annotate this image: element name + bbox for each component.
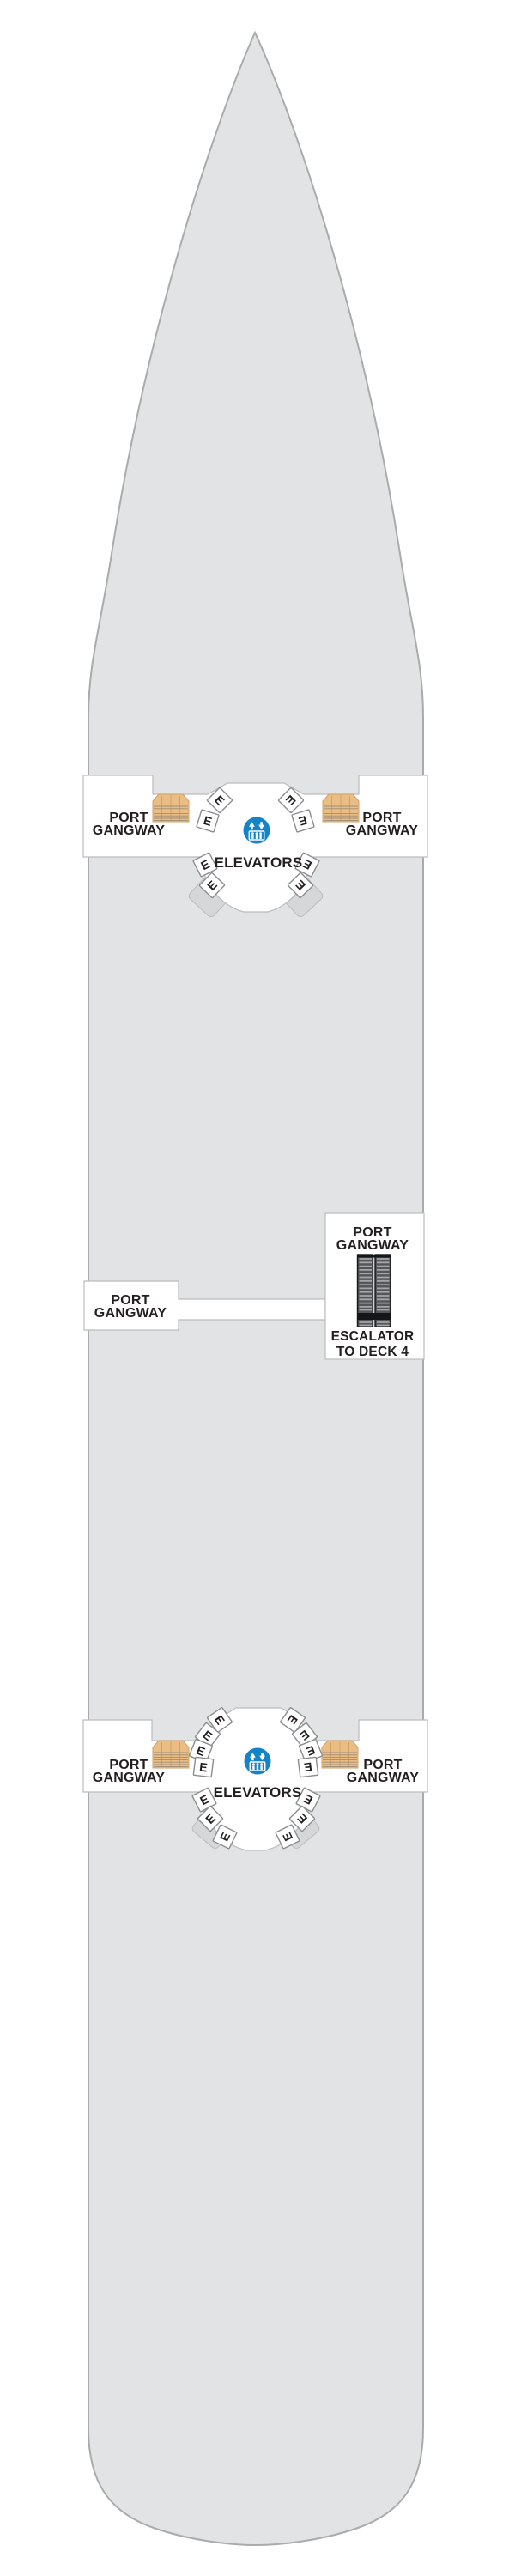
elevators-label: ELEVATORS [215,854,303,871]
elevator-car-box: E [193,1757,213,1777]
elevators-label: ELEVATORS [214,1784,302,1801]
escalator-label: ESCALATOR [331,1329,415,1344]
gangway-stairs-icon [153,794,189,822]
port-gangway-label-midship-left: GANGWAY [94,1306,167,1321]
escalator-label: TO DECK 4 [336,1345,409,1359]
port-gangway-label-forward-left: GANGWAY [93,823,166,838]
port-gangway-label-midship-right: GANGWAY [336,1238,409,1253]
gangway-stairs-icon [322,1741,358,1768]
port-gangway-label-forward-right: GANGWAY [346,823,419,838]
port-gangway-label-aft-right: GANGWAY [347,1771,420,1785]
gangway-stairs-icon [323,794,359,822]
gangway-stairs-icon [153,1741,189,1768]
elevator-car-box: E [298,1757,318,1777]
elevator-e-label: E [198,1759,208,1774]
elevators-badge-icon [244,817,270,844]
port-gangway-label-aft-left: GANGWAY [93,1771,166,1785]
deck-plan-page: E E E E E E E E ELEVATORS PORT GANGWAY P… [0,0,515,2576]
deck-plan-svg: E E E E E E E E ELEVATORS PORT GANGWAY P… [0,0,515,2576]
elevators-badge-icon [245,1748,271,1775]
elevator-e-label: E [303,1759,312,1774]
